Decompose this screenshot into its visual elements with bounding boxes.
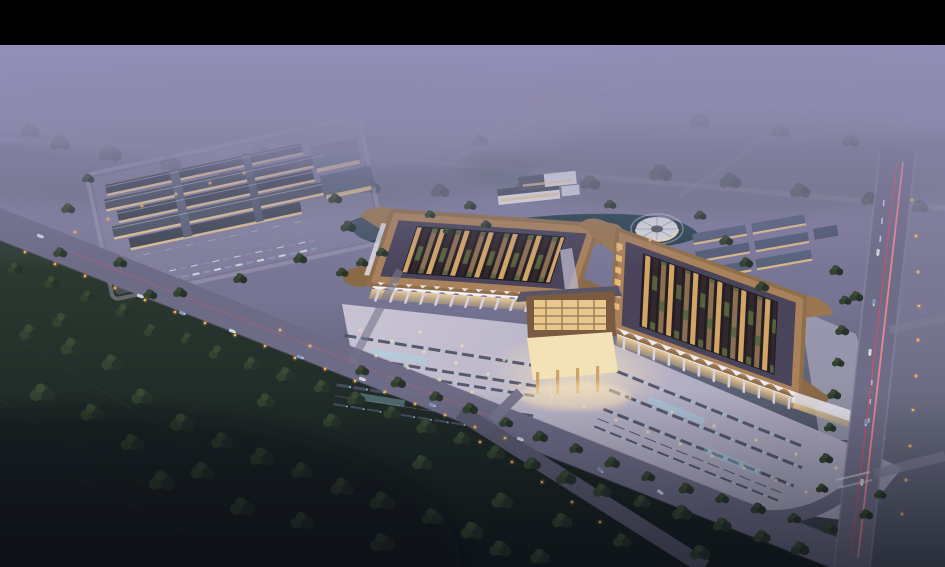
letterbox-top bbox=[0, 0, 945, 45]
gate-lattice bbox=[534, 300, 606, 330]
architectural-rendering bbox=[0, 0, 945, 567]
fog-bank bbox=[0, 63, 610, 167]
gate-hall-glow bbox=[527, 332, 618, 380]
rendering-canvas bbox=[0, 0, 945, 567]
